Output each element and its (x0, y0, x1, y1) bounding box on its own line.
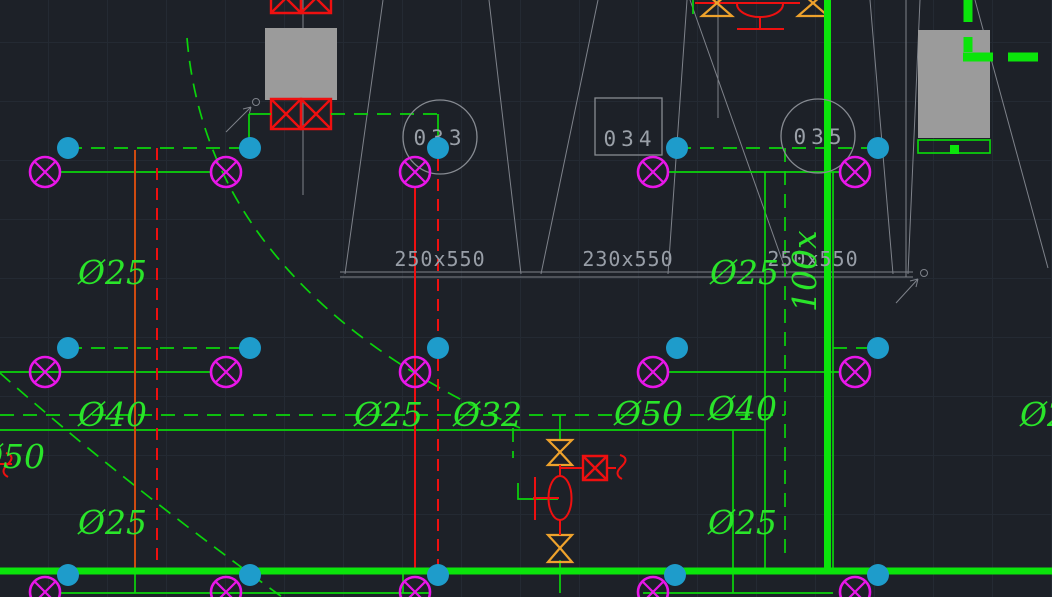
duct-size-label: 250x550 (394, 247, 485, 271)
lamp-symbol-icon (211, 157, 241, 187)
leader-arrow-icon (896, 270, 928, 304)
lamp-symbol-icon (840, 357, 870, 387)
junction-dot (239, 137, 261, 159)
pipe-diameter-label: Ø40 (707, 389, 777, 428)
junction-dot (867, 564, 889, 586)
pipe-diameter-label: Ø50 (613, 394, 683, 433)
lamp-symbol-icon (30, 157, 60, 187)
lamp-symbol-icon (638, 577, 668, 597)
valve-assembly (533, 440, 626, 562)
pipe-diameter-label: Ø40 (77, 395, 147, 434)
green-mains-layer (0, 0, 1052, 571)
junction-dot (867, 137, 889, 159)
cad-canvas[interactable]: 033 034 035 250x550230x550250x550 Ø25Ø25… (0, 0, 1052, 597)
pump-assembly-top (693, 0, 828, 29)
pipe-break-icon (618, 455, 626, 479)
valve-icon (798, 0, 828, 16)
pipe-diameter-label: Ø25 (353, 395, 423, 434)
room-number: 034 (604, 127, 657, 151)
lamp-symbol-icon (638, 357, 668, 387)
pipe-diameter-label: Ø50 (0, 437, 45, 476)
junction-dot (57, 137, 79, 159)
pipe-diameter-label: Ø25 (707, 503, 777, 542)
junction-dot (239, 337, 261, 359)
lamp-symbol-icon (840, 157, 870, 187)
junction-dot (666, 137, 688, 159)
duct-size-label: 230x550 (582, 247, 673, 271)
valve-icon (548, 440, 572, 465)
lamp-symbol-icon (211, 357, 241, 387)
lamp-symbol-icon (211, 577, 241, 597)
junction-dot (427, 137, 449, 159)
junction-dot (57, 564, 79, 586)
pipe-diameter-label: Ø25 (77, 503, 147, 542)
junction-dot (867, 337, 889, 359)
junction-dot (427, 337, 449, 359)
pipe-diameter-label: Ø25 (1019, 395, 1052, 434)
leader-arrow-icon (226, 99, 260, 133)
lamp-symbol-icon (400, 577, 430, 597)
pipe-diameter-label: Ø25 (709, 253, 779, 292)
room-tag-033: 033 (403, 100, 477, 174)
pipe-diameter-label: Ø25 (77, 253, 147, 292)
room-tag-034: 034 (595, 98, 662, 155)
valve-icon (548, 535, 572, 562)
junction-dot (666, 337, 688, 359)
junction-dot (427, 564, 449, 586)
junction-dot (664, 564, 686, 586)
room-number: 035 (794, 125, 847, 149)
junction-dot (239, 564, 261, 586)
vertical-duct-label: 100x (785, 230, 824, 312)
lamp-symbol-icon (840, 577, 870, 597)
radiator-top-right (918, 30, 990, 154)
junction-dot (57, 337, 79, 359)
lamp-symbol-icon (30, 577, 60, 597)
radiator-top-left (265, 0, 337, 129)
cad-drawing: 033 034 035 250x550230x550250x550 Ø25Ø25… (0, 0, 1052, 597)
dashed-arc (187, 38, 520, 428)
lamp-symbol-icon (638, 157, 668, 187)
equipment-box-icon (583, 456, 607, 480)
pipe-diameter-label: Ø32 (452, 395, 522, 434)
riser-return-dashed (157, 148, 438, 571)
lamp-symbol-icon (400, 157, 430, 187)
